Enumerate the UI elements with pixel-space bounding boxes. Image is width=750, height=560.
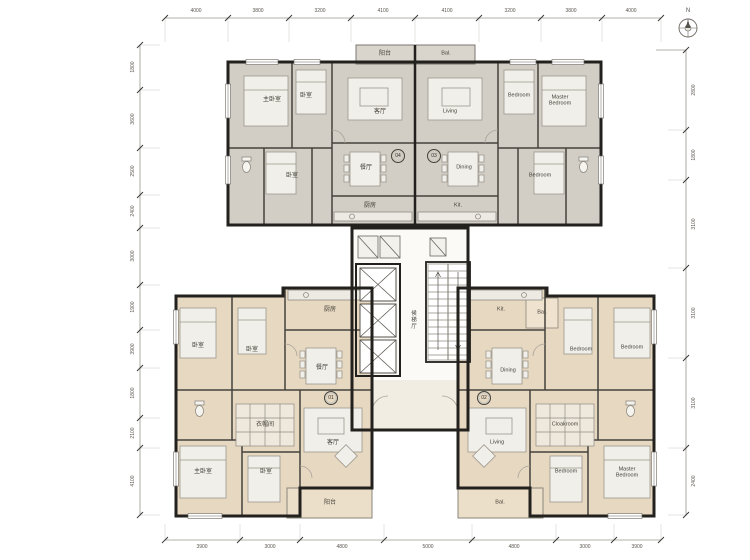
dim-bottom-2: 4800 [336,544,347,550]
unit-number-03: 03 [427,149,441,163]
dim-bottom-3: 5000 [422,544,433,550]
dim-left-5: 1900 [130,301,136,312]
room-label-u01-master-bedroom: 主卧室 [194,469,212,475]
dim-left-7: 1800 [130,387,136,398]
room-label-u04-kitchen: 厨房 [364,203,376,209]
room-label-u01-bedroom-b: 卧室 [246,347,258,353]
room-label-u02-kitchen: Kit. [497,307,505,313]
room-label-u01-living: 客厅 [327,440,339,446]
room-label-u03-bedroom-b: Bedroom [529,173,551,179]
dim-right-3: 3100 [691,307,697,318]
room-label-u04-master-bedroom: 主卧室 [263,97,281,103]
north-arrow-icon [679,19,697,37]
dim-top-3: 4100 [377,8,388,14]
unit-number-04: 04 [391,149,405,163]
dim-left-6: 3900 [130,343,136,354]
room-label-u04-bedroom-b: 卧室 [286,173,298,179]
room-label-u02-cloakroom: Cloakroom [552,422,579,428]
dim-top-4: 4100 [441,8,452,14]
dim-left-9: 4100 [130,475,136,486]
room-label-u02-master-bedroom: Master Bedroom [609,467,645,480]
room-label-u01-balcony: 阳台 [324,500,336,506]
dim-bottom-4: 4800 [508,544,519,550]
unit-number-02: 02 [477,391,491,405]
dim-left-2: 2500 [130,165,136,176]
room-label-u02-bedroom-c: Bedroom [555,469,577,475]
room-label-u03-dining: Dining [456,165,472,171]
core-lobby-label: 候梯厅 [409,310,417,330]
floor-plan: 主卧室 卧室 客厅 卧室 餐厅 厨房 阳台 04 Living Bedroom … [0,0,750,560]
dim-top-7: 4000 [625,8,636,14]
room-label-u02-living: Living [490,440,504,446]
room-label-u03-master-bedroom: Master Bedroom [542,95,578,108]
room-label-u02-bedroom-a: Bedroom [570,347,592,353]
dim-left-4: 3000 [130,250,136,261]
room-label-u03-kitchen: Kit. [454,203,462,209]
room-label-u04-living: 客厅 [374,109,386,115]
dim-top-1: 3800 [252,8,263,14]
dim-left-3: 2400 [130,205,136,216]
dim-right-5: 2400 [691,475,697,486]
dim-right-0: 2800 [691,84,697,95]
room-label-u01-kitchen: 厨房 [324,307,336,313]
room-label-u03-living: Living [443,109,457,115]
dim-left-1: 3600 [130,113,136,124]
dim-bottom-5: 3000 [579,544,590,550]
north-label: N [686,8,690,14]
dim-top-6: 3800 [565,8,576,14]
dim-left-0: 1800 [130,61,136,72]
unit-number-01: 01 [324,391,338,405]
dim-top-5: 3200 [504,8,515,14]
room-label-u04-dining: 餐厅 [360,165,372,171]
room-label-u02-dining: Dining [500,368,516,374]
dim-top-0: 4000 [190,8,201,14]
room-label-u03-balcony: Bal. [441,51,450,57]
room-label-u04-bedroom-a: 卧室 [300,93,312,99]
room-label-u04-balcony: 阳台 [379,51,391,57]
room-label-u02-balcony: Bal. [495,500,504,506]
room-label-u01-bedroom-c: 卧室 [260,469,272,475]
room-label-u02-bedroom-b: Bedroom [621,345,643,351]
dim-bottom-0: 3900 [196,544,207,550]
dim-right-1: 1800 [691,149,697,160]
stairwell [428,264,468,360]
dim-right-2: 3100 [691,218,697,229]
room-label-u01-bedroom-a: 卧室 [192,343,204,349]
dim-top-2: 3200 [314,8,325,14]
dim-bottom-6: 3900 [631,544,642,550]
dim-left-8: 2100 [130,427,136,438]
room-label-u02-service-balcony: Bal. [537,310,546,316]
room-label-u01-cloakroom: 衣帽间 [256,422,274,428]
room-label-u01-dining: 餐厅 [316,365,328,371]
room-label-u03-bedroom-a: Bedroom [508,93,530,99]
dim-bottom-1: 3000 [264,544,275,550]
dim-right-4: 3100 [691,397,697,408]
elevator-shafts [360,268,396,373]
